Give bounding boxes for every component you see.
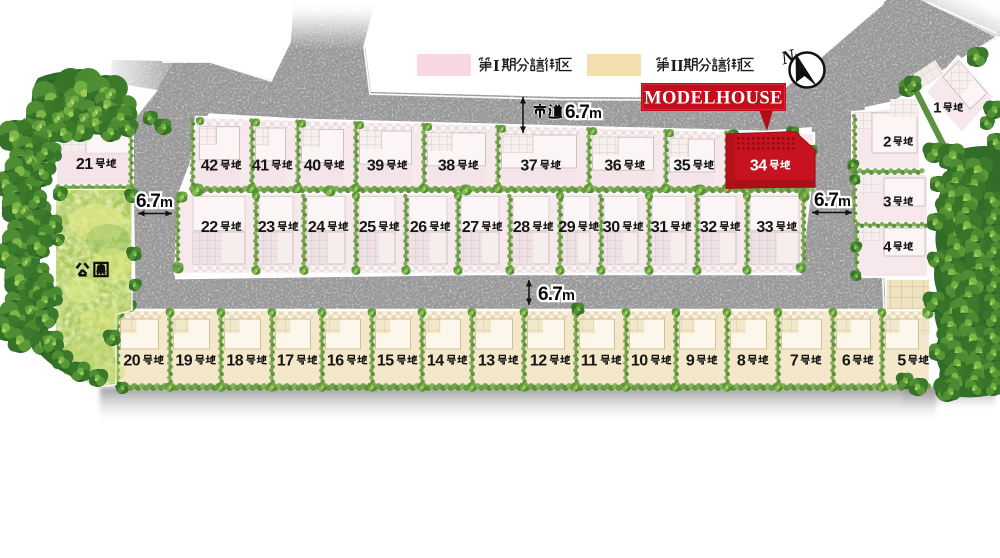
svg-text:23: 23 [258,219,275,236]
svg-text:16: 16 [327,352,344,369]
svg-text:34: 34 [750,157,767,174]
svg-text:19: 19 [175,352,192,369]
svg-text:4: 4 [883,238,892,255]
svg-text:38: 38 [438,157,455,174]
svg-text:7: 7 [790,352,799,369]
svg-text:6.7m: 6.7m [814,190,850,211]
svg-text:9: 9 [686,352,695,369]
svg-text:6.7m: 6.7m [538,284,574,305]
svg-text:39: 39 [367,157,384,174]
svg-text:36: 36 [604,157,621,174]
svg-text:22: 22 [201,219,218,236]
svg-text:42: 42 [201,157,218,174]
svg-text:37: 37 [520,157,537,174]
svg-text:II: II [671,56,685,75]
svg-text:33: 33 [756,219,773,236]
svg-text:40: 40 [304,157,321,174]
svg-text:10: 10 [631,352,648,369]
svg-text:18: 18 [226,352,243,369]
svg-text:21: 21 [76,156,93,173]
svg-text:MODELHOUSE: MODELHOUSE [644,89,783,109]
svg-text:25: 25 [359,219,376,236]
svg-text:29: 29 [558,219,575,236]
svg-text:17: 17 [277,352,294,369]
svg-text:35: 35 [673,157,690,174]
svg-text:I: I [493,56,500,75]
svg-text:20: 20 [123,352,140,369]
svg-text:24: 24 [308,219,325,236]
svg-text:8: 8 [737,352,746,369]
svg-text:6: 6 [842,352,851,369]
svg-text:15: 15 [377,352,394,369]
svg-text:41: 41 [252,157,269,174]
svg-text:30: 30 [603,219,620,236]
svg-text:2: 2 [883,133,891,150]
svg-text:26: 26 [410,219,427,236]
svg-text:6.7m: 6.7m [136,191,172,212]
svg-text:11: 11 [581,352,598,369]
svg-text:32: 32 [700,219,717,236]
svg-text:3: 3 [883,193,891,210]
svg-text:12: 12 [530,352,547,369]
svg-text:28: 28 [513,219,530,236]
svg-text:13: 13 [478,352,495,369]
svg-text:31: 31 [651,219,668,236]
svg-text:14: 14 [427,352,444,369]
svg-text:5: 5 [897,352,906,369]
svg-text:1: 1 [933,99,941,116]
svg-text:27: 27 [462,219,479,236]
svg-text:6.7m: 6.7m [565,102,601,123]
